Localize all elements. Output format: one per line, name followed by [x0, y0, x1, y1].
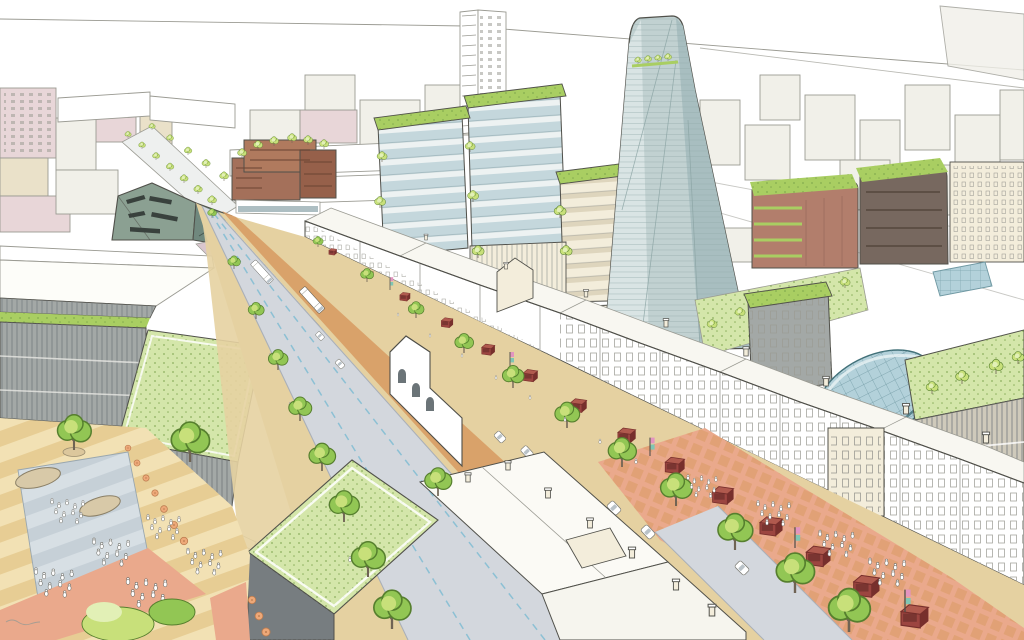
illustration-canvas: Aerial sketch visualisation of a regener…: [0, 0, 1024, 640]
masterplan-illustration: Aerial sketch visualisation of a regener…: [0, 0, 1024, 640]
timber-terrace-building: [232, 134, 336, 215]
